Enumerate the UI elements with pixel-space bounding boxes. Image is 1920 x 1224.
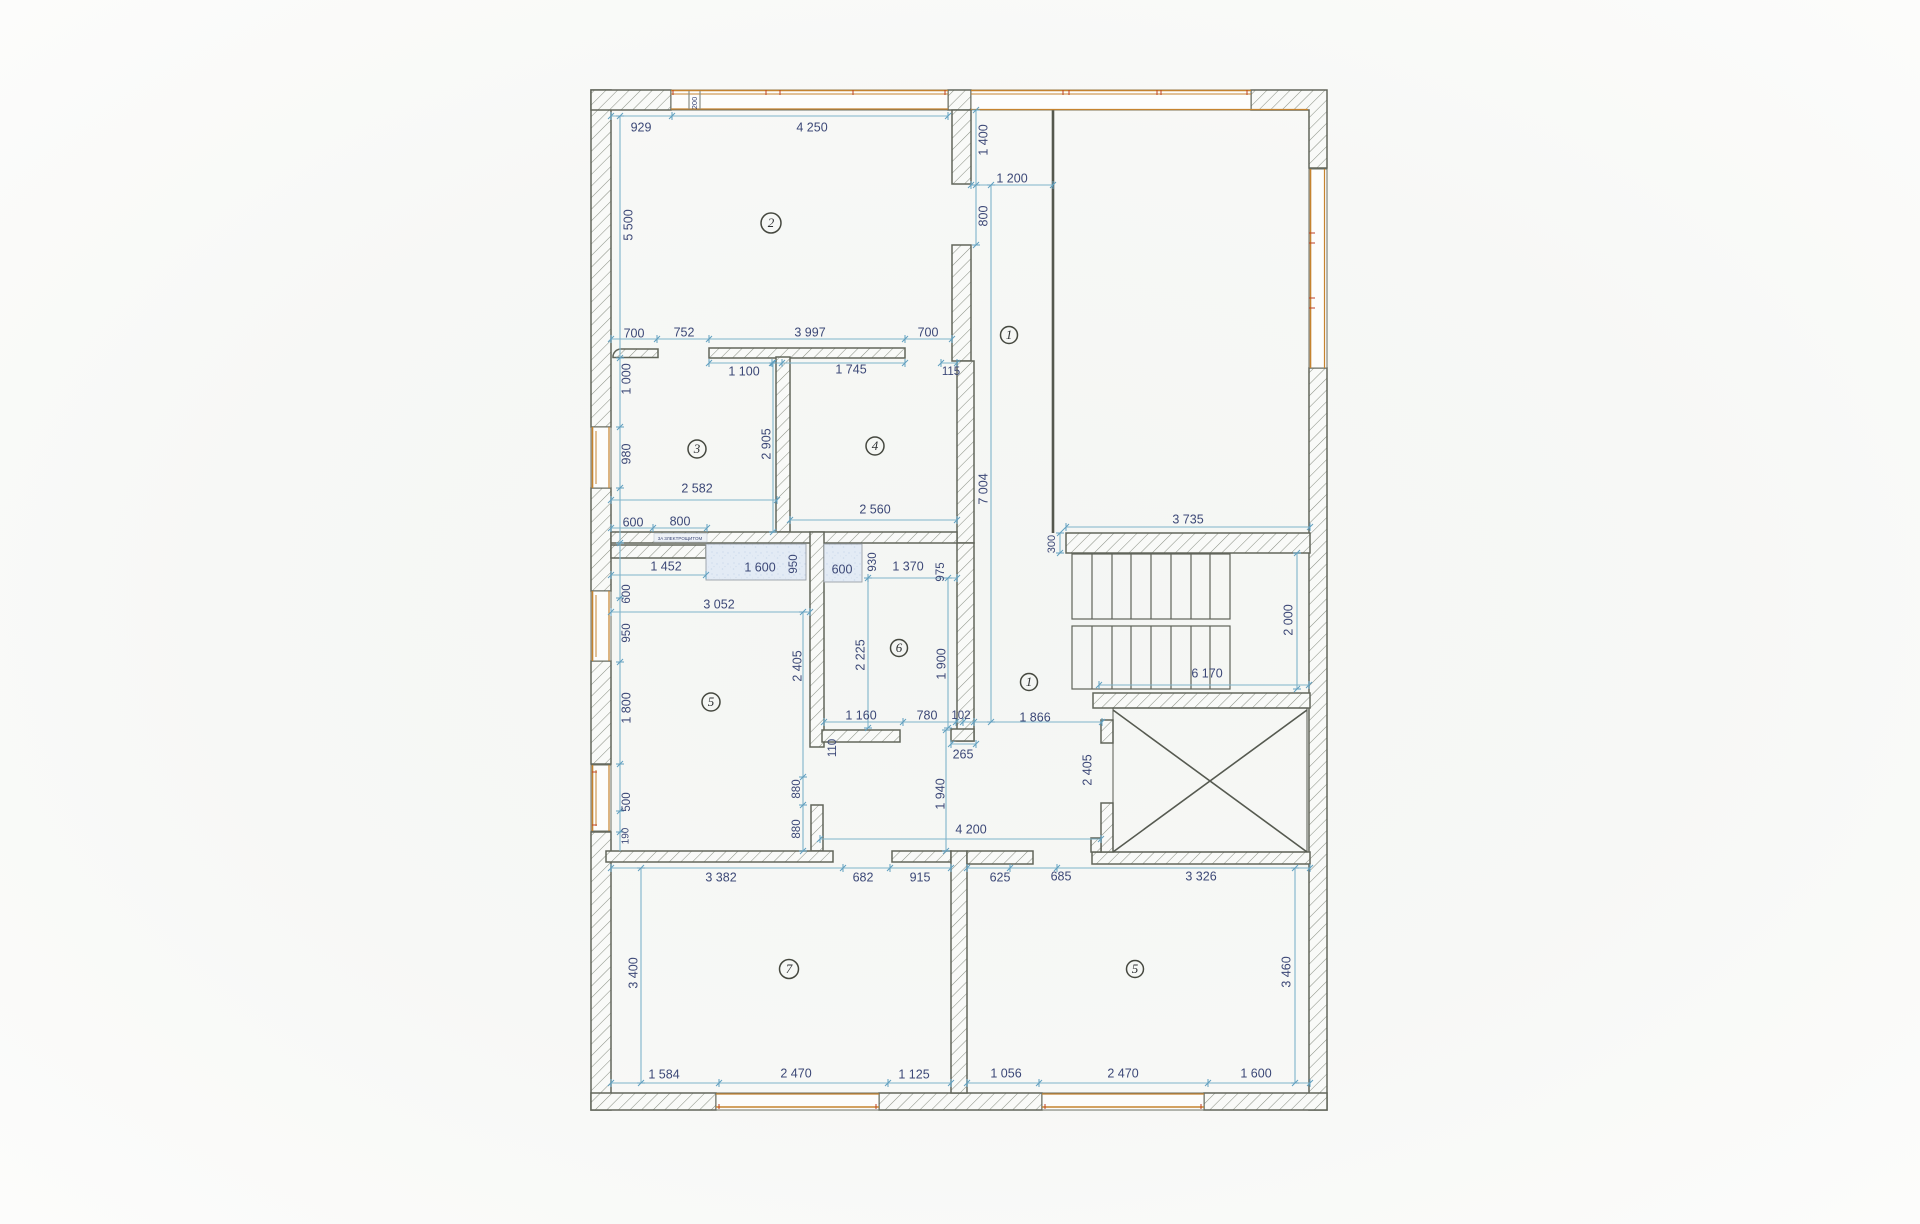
svg-text:4 250: 4 250 [796, 120, 827, 134]
svg-text:5 500: 5 500 [621, 209, 635, 240]
svg-text:4 200: 4 200 [955, 822, 986, 836]
svg-text:4: 4 [872, 438, 879, 453]
svg-text:1 000: 1 000 [619, 363, 633, 394]
svg-text:2 225: 2 225 [853, 639, 867, 670]
svg-text:625: 625 [990, 870, 1011, 884]
svg-text:265: 265 [953, 747, 974, 761]
svg-text:600: 600 [621, 584, 633, 603]
svg-text:880: 880 [791, 819, 803, 838]
svg-text:1 056: 1 056 [990, 1066, 1021, 1080]
svg-text:3 735: 3 735 [1172, 512, 1203, 526]
svg-text:2 000: 2 000 [1281, 604, 1295, 635]
svg-text:1 400: 1 400 [976, 124, 990, 155]
svg-text:6: 6 [896, 640, 903, 655]
svg-text:6 170: 6 170 [1191, 666, 1222, 680]
svg-text:1 125: 1 125 [898, 1067, 929, 1081]
svg-text:880: 880 [791, 779, 803, 798]
svg-text:600: 600 [832, 562, 853, 576]
svg-text:1 370: 1 370 [892, 559, 923, 573]
svg-text:115: 115 [942, 366, 960, 378]
svg-text:3 052: 3 052 [703, 597, 734, 611]
svg-text:3: 3 [693, 441, 701, 456]
svg-text:950: 950 [621, 623, 633, 642]
svg-text:752: 752 [674, 325, 695, 339]
svg-text:780: 780 [917, 708, 938, 722]
svg-text:800: 800 [976, 206, 990, 227]
svg-text:5: 5 [1132, 961, 1139, 976]
svg-text:1 940: 1 940 [933, 778, 947, 809]
svg-text:7 004: 7 004 [976, 473, 990, 504]
svg-text:980: 980 [619, 444, 633, 465]
svg-text:1 600: 1 600 [1240, 1066, 1271, 1080]
svg-text:1 100: 1 100 [728, 364, 759, 378]
svg-text:1 584: 1 584 [648, 1067, 679, 1081]
svg-text:102: 102 [951, 710, 970, 722]
svg-text:930: 930 [867, 552, 879, 571]
svg-text:2 470: 2 470 [1107, 1066, 1138, 1080]
svg-text:1 800: 1 800 [619, 692, 633, 723]
svg-text:500: 500 [621, 792, 633, 811]
svg-text:2: 2 [768, 215, 775, 230]
svg-text:1: 1 [1006, 327, 1013, 342]
svg-text:700: 700 [624, 326, 645, 340]
svg-text:700: 700 [918, 325, 939, 339]
svg-text:190: 190 [621, 827, 632, 844]
svg-text:1 600: 1 600 [744, 560, 775, 574]
svg-text:2 905: 2 905 [759, 428, 773, 459]
svg-text:1 900: 1 900 [934, 648, 948, 679]
svg-text:2 405: 2 405 [790, 650, 804, 681]
svg-text:3A 3ЛEKTPOЩИTOM: 3A 3ЛEKTPOЩИTOM [658, 536, 703, 541]
svg-text:2 405: 2 405 [1080, 754, 1094, 785]
svg-text:685: 685 [1051, 869, 1072, 883]
svg-text:929: 929 [631, 120, 652, 134]
svg-text:1: 1 [1026, 674, 1033, 689]
svg-text:7: 7 [786, 961, 793, 976]
svg-text:3 400: 3 400 [626, 957, 640, 988]
svg-text:3 460: 3 460 [1279, 956, 1293, 987]
svg-text:1 866: 1 866 [1019, 710, 1050, 724]
svg-text:975: 975 [935, 562, 947, 581]
svg-text:200: 200 [690, 97, 699, 110]
svg-text:600: 600 [623, 515, 644, 529]
svg-text:110: 110 [827, 739, 839, 757]
svg-text:3 382: 3 382 [705, 870, 736, 884]
svg-text:800: 800 [670, 514, 691, 528]
svg-text:3 997: 3 997 [794, 325, 825, 339]
svg-text:2 470: 2 470 [780, 1066, 811, 1080]
svg-text:682: 682 [853, 870, 874, 884]
svg-text:915: 915 [910, 870, 931, 884]
svg-text:2 560: 2 560 [859, 502, 890, 516]
svg-text:1 200: 1 200 [996, 171, 1027, 185]
svg-text:1 160: 1 160 [845, 708, 876, 722]
svg-text:1 745: 1 745 [835, 362, 866, 376]
svg-text:2 582: 2 582 [681, 481, 712, 495]
svg-text:300: 300 [1046, 535, 1058, 553]
svg-text:5: 5 [708, 694, 715, 709]
svg-text:950: 950 [788, 554, 800, 573]
svg-text:3 326: 3 326 [1185, 869, 1216, 883]
svg-text:1 452: 1 452 [650, 559, 681, 573]
